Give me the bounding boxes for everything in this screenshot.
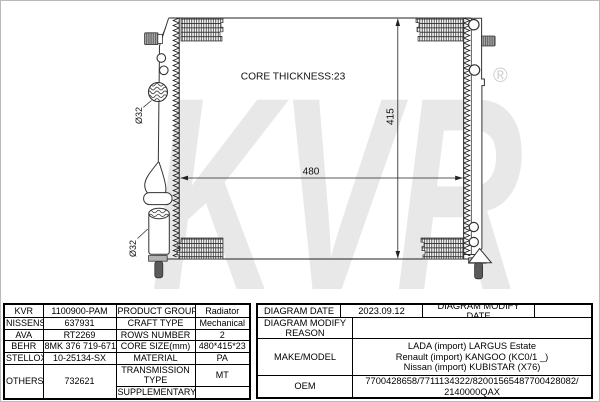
code-cell: 732621 [43,364,116,399]
value-cell: MT [195,364,250,386]
value-cell: Mechanical [195,317,250,329]
value-cell: PA [195,352,250,364]
diagram-date-label: DIAGRAM DATE [258,305,341,317]
brand-cell: STELLOX [4,352,43,364]
brand-cell: AVA [4,329,43,340]
port-diameter-top-label: Ø32 [134,107,144,124]
outlet-pipe [138,208,170,254]
modify-date-value [535,305,591,317]
filler-neck [145,28,166,45]
code-cell: 637931 [43,317,116,329]
oem-label: OEM [258,376,353,397]
value-cell: 480*415*23 [195,340,250,352]
modify-reason-value [353,318,591,338]
property-cell: ROWS NUMBER [116,329,195,340]
mount-bracket [144,193,173,205]
registered-mark-icon: ® [493,65,508,87]
make-model-line: Nissan (import) KUBISTAR (X76) [404,362,541,373]
mount-hole [160,66,169,75]
table-row: NISSENS 637931 CRAFT TYPE Mechanical [4,317,250,329]
side-stub-pipe [482,36,496,46]
oem-value: 7700428658/7711134322/820015654877004280… [353,376,591,397]
code-cell: RT2269 [43,329,116,340]
table-row: OEM 7700428658/7711134322/82001565487700… [258,376,591,397]
code-cell: 1100900-PAM [43,304,116,317]
dim-width-label: 480 [303,167,320,178]
table-row: DIAGRAM MODIFY REASON [258,318,591,339]
property-cell: TRANSMISSION TYPE [116,364,195,386]
brand-cell: NISSENS [4,317,43,329]
brand-cell: OTHERS [4,364,43,399]
catalog-page: KVR ® [0,0,600,402]
property-cell: PRODUCT GROUP [116,304,195,317]
oem-line: 2140000QAX [444,387,500,398]
core-thickness-label: CORE THICKNESS:23 [241,72,346,83]
table-row: DIAGRAM DATE 2023.09.12 DIAGRAM MODIFY D… [258,305,591,318]
mount-hole [469,237,478,246]
make-model-label: MAKE/MODEL [258,339,353,375]
radiator-diagram: KVR ® [1,1,600,301]
info-table: DIAGRAM DATE 2023.09.12 DIAGRAM MODIFY D… [256,303,593,399]
value-cell: 2 [195,329,250,340]
code-cell: 10-25134-SX [43,352,116,364]
make-model-line: Renault (import) KANGOO (KC0/1 _) [396,352,548,363]
mount-hole [157,54,166,63]
oem-line: 7700428658/7711134322/820015654877004280… [365,376,578,387]
brand-cell: KVR [4,304,43,317]
table-row: STELLOX 10-25134-SX MATERIAL PA [4,352,250,364]
property-cell: CRAFT TYPE [116,317,195,329]
mount-hole [469,65,479,75]
port-diameter-bottom-label: Ø32 [128,240,138,257]
modify-reason-label: DIAGRAM MODIFY REASON [258,318,353,338]
table-row: OTHERS 732621 TRANSMISSION TYPE MT [4,364,250,386]
make-model-line: LADA (import) LARGUS Estate [408,341,536,352]
property-cell: MATERIAL [116,352,195,364]
make-model-value: LADA (import) LARGUS Estate Renault (imp… [353,339,591,375]
dim-height-label: 415 [386,108,397,125]
table-row: BEHR 8MK 376 719-671 CORE SIZE(mm) 480*4… [4,340,250,352]
spec-table: KVR 1100900-PAM PRODUCT GROUP Radiator N… [3,303,251,400]
modify-date-label: DIAGRAM MODIFY DATE [423,305,535,317]
property-cell: SUPPLEMENTARY [116,386,195,399]
diagram-date-value: 2023.09.12 [341,305,423,317]
mount-hole [469,222,478,231]
mount-hole [469,20,479,30]
table-row: KVR 1100900-PAM PRODUCT GROUP Radiator [4,304,250,317]
table-row: MAKE/MODEL LADA (import) LARGUS Estate R… [258,339,591,376]
property-cell: CORE SIZE(mm) [116,340,195,352]
code-cell: 8MK 376 719-671 [43,340,116,352]
value-cell: Radiator [195,304,250,317]
brand-cell: BEHR [4,340,43,352]
value-cell [195,386,250,399]
table-row: AVA RT2269 ROWS NUMBER 2 [4,329,250,340]
